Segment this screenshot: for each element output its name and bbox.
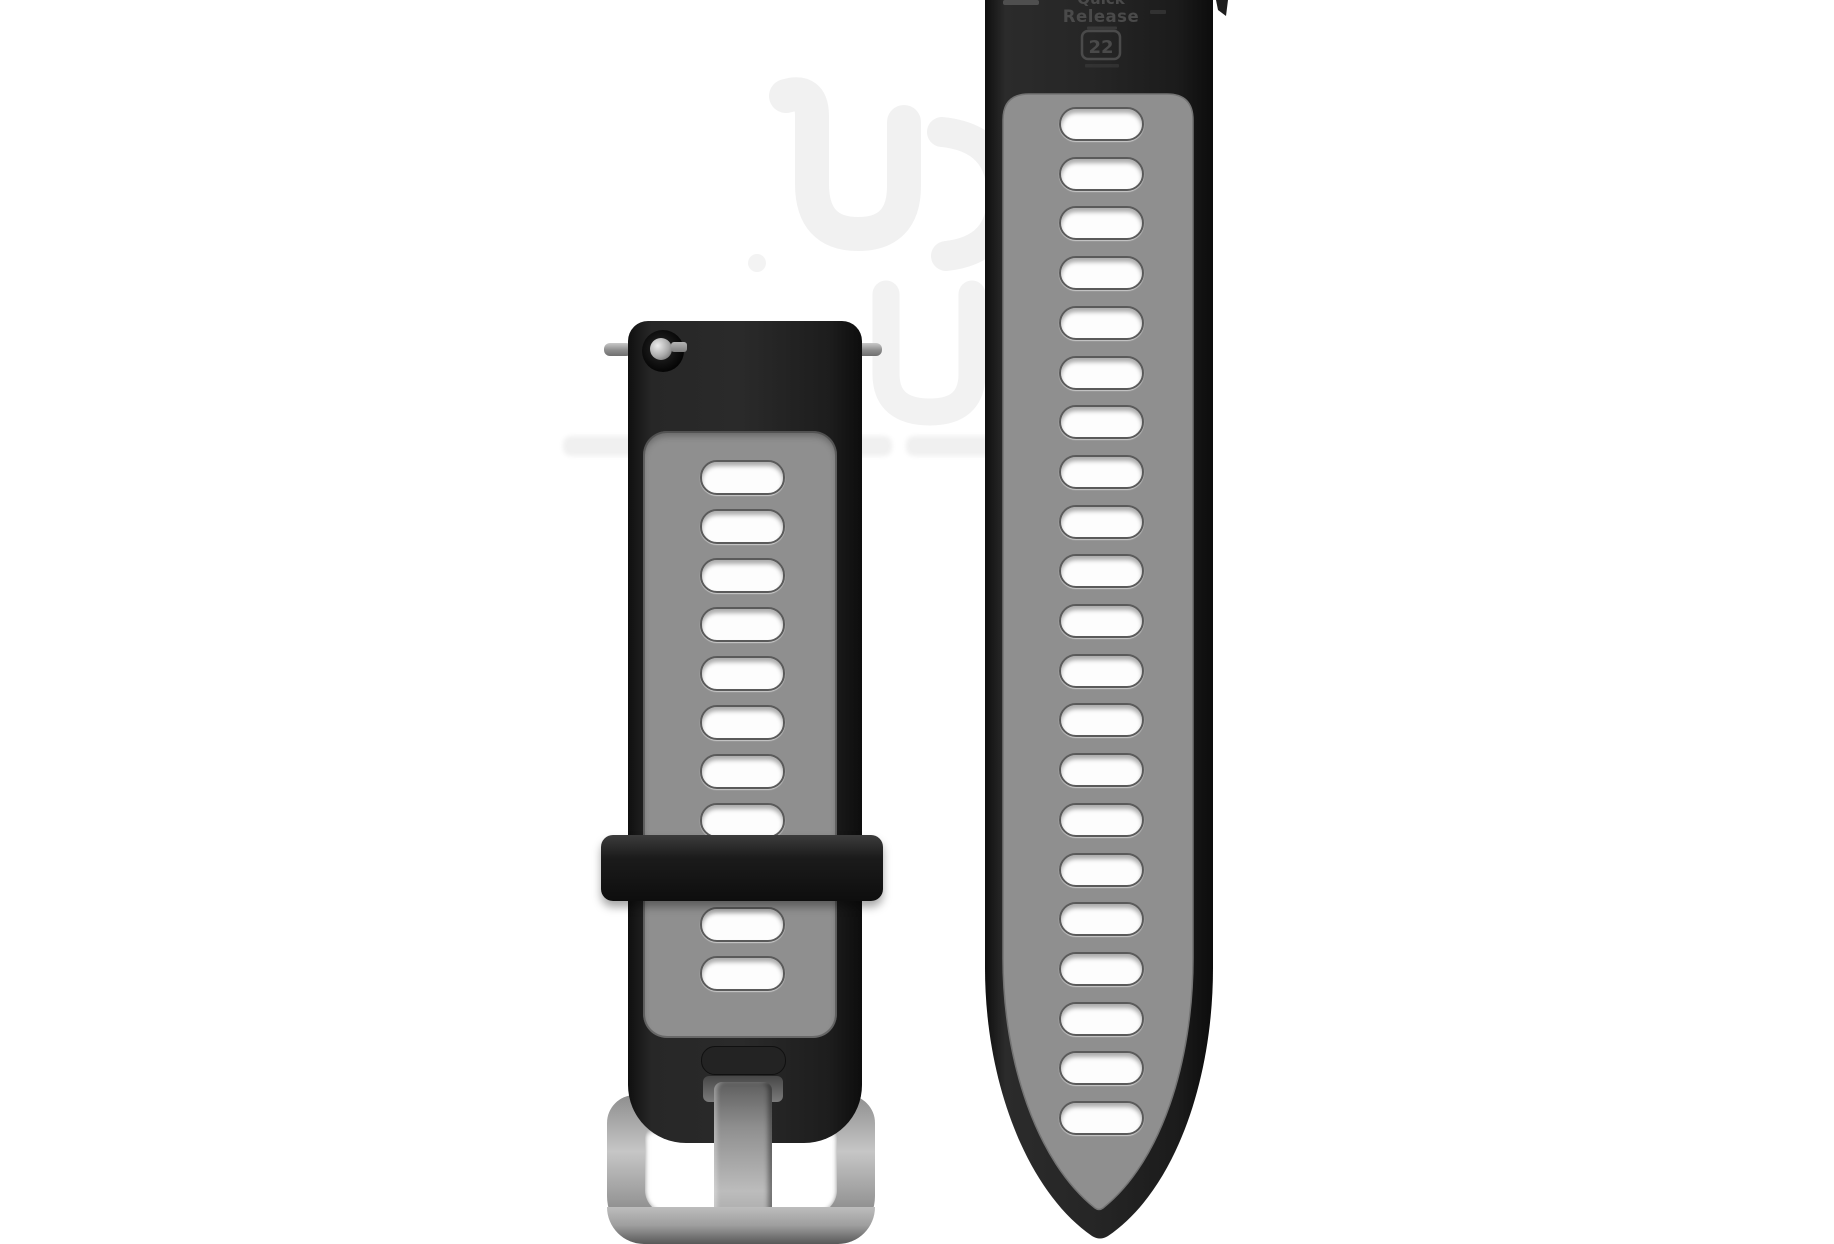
band-hole [1059, 654, 1144, 688]
band-hole [1059, 604, 1144, 638]
band-hole [700, 907, 785, 942]
band-hole [1059, 853, 1144, 887]
band-hole [1059, 952, 1144, 986]
watermark-glyph-3 [886, 294, 972, 412]
band-hole [1059, 256, 1144, 290]
product-photo: Quick Release 22 [0, 0, 1834, 1244]
band-hole [1059, 206, 1144, 240]
band-hole [700, 956, 785, 991]
quick-release-knob [650, 338, 672, 360]
band-hole [1059, 455, 1144, 489]
watermark-logo [0, 0, 1834, 1244]
band-hole [1059, 1051, 1144, 1085]
band-hole [1059, 1002, 1144, 1036]
band-hole [1059, 405, 1144, 439]
right-band-lug-sliver [1003, 0, 1039, 5]
band-hole [1059, 803, 1144, 837]
band-hole [1059, 505, 1144, 539]
band-hole [1059, 157, 1144, 191]
band-hole [1059, 356, 1144, 390]
engraving-tm-mark [1150, 10, 1166, 14]
quick-release-lever [671, 342, 687, 352]
right-band-corner-tab [1216, 0, 1228, 16]
band-hole [1059, 902, 1144, 936]
band-hole [1059, 554, 1144, 588]
keeper-loop [601, 835, 883, 901]
band-hole [1059, 703, 1144, 737]
buckle-bottom-bar [607, 1207, 875, 1244]
band-hole [1059, 306, 1144, 340]
band-hole [1059, 753, 1144, 787]
right-band-holes [1059, 0, 1144, 1244]
band-hole [1059, 107, 1144, 141]
watermark-glyph-1 [786, 94, 904, 234]
left-band-holes-lower [700, 0, 785, 1244]
band-hole [1059, 1101, 1144, 1135]
